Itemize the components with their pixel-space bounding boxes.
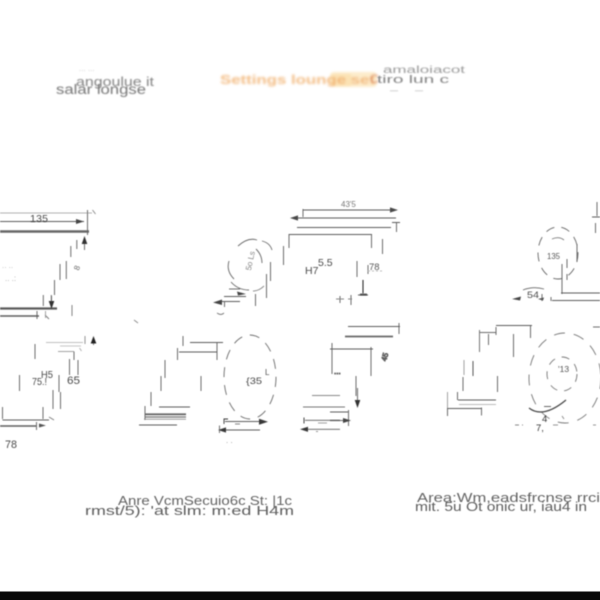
svg-text:54: 54 xyxy=(527,290,539,300)
svg-text:135: 135 xyxy=(547,251,560,261)
svg-text:— —: — — xyxy=(390,86,423,95)
svg-text:.. ..: .. .. xyxy=(2,261,13,270)
svg-text:'13: '13 xyxy=(558,364,569,374)
svg-text:...: ... xyxy=(334,367,341,376)
svg-text:H7: H7 xyxy=(305,265,319,277)
svg-text:7,: 7, xyxy=(536,423,544,434)
svg-text:78: 78 xyxy=(369,262,380,273)
svg-text:L: L xyxy=(265,368,270,377)
svg-text:mit. 5u Ot onic ur, iau4 in: mit. 5u Ot onic ur, iau4 in xyxy=(415,500,587,514)
svg-text:43'5: 43'5 xyxy=(341,200,356,209)
svg-text:5.5: 5.5 xyxy=(318,257,333,269)
svg-text:135: 135 xyxy=(30,213,48,225)
svg-text:{35: {35 xyxy=(246,376,262,386)
svg-text:75.!: 75.! xyxy=(32,376,47,388)
svg-text:.. .:: .. .: xyxy=(5,274,16,283)
svg-text:Settings lounge set: Settings lounge set xyxy=(220,72,376,87)
svg-text:78: 78 xyxy=(5,439,17,451)
svg-text:salar longse: salar longse xyxy=(56,82,146,97)
svg-text:65: 65 xyxy=(67,375,80,387)
svg-text:. .: . . xyxy=(226,436,233,445)
svg-text:tiro lun c: tiro lun c xyxy=(377,74,450,86)
svg-text:... ...: ... ... xyxy=(79,64,95,73)
svg-text:rmst/5): 'at slm: m:ed H4m: rmst/5): 'at slm: m:ed H4m xyxy=(85,503,294,518)
